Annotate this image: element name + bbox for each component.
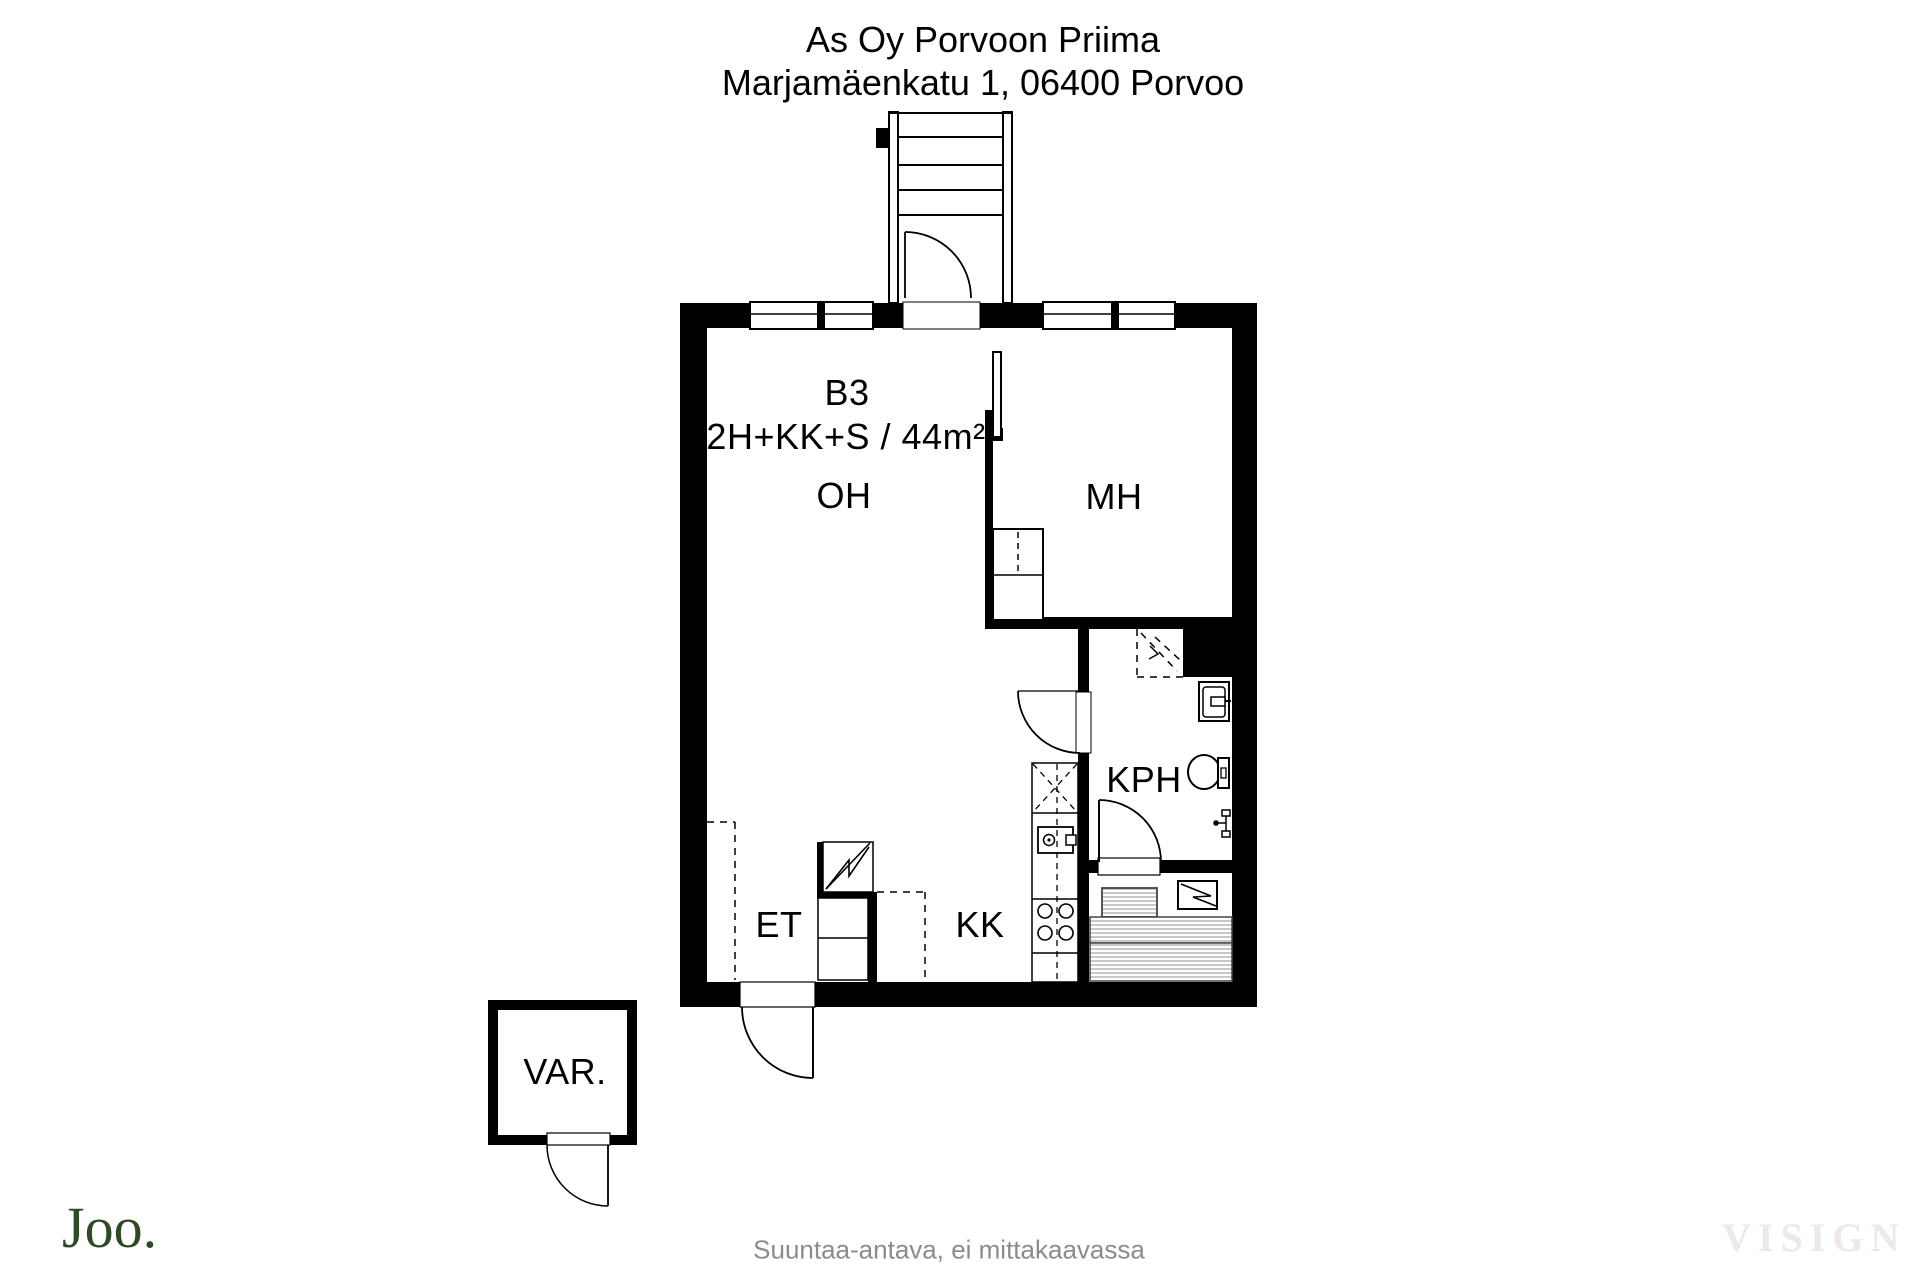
sauna (1090, 881, 1232, 981)
plan-title: As Oy Porvoon Priima Marjamäenkatu 1, 06… (722, 18, 1244, 104)
sauna-bench-lower (1090, 943, 1232, 981)
toilet-icon (1188, 755, 1229, 789)
storage-door-swing-arc (547, 1145, 608, 1206)
room-label-living-room: OH (817, 475, 872, 517)
balcony-door-swing-arc (905, 232, 971, 298)
storage-building (488, 1000, 637, 1206)
kiuas-heater-icon (1178, 881, 1217, 909)
kitchen-counter (1032, 763, 1078, 982)
title-line1: As Oy Porvoon Priima (722, 18, 1244, 61)
entry-area (707, 822, 925, 981)
balcony-door-opening (903, 302, 980, 329)
bedroom-closet (993, 529, 1043, 620)
floor-plan-drawing (0, 0, 1920, 1280)
staircase (876, 112, 1012, 303)
unit-type-label: 2H+KK+S / 44m² (706, 416, 985, 458)
floor-plan-page: As Oy Porvoon Priima Marjamäenkatu 1, 06… (0, 0, 1920, 1280)
interior-walls (817, 410, 1232, 982)
joo-logo: Joo. (62, 1194, 157, 1261)
sauna-door-threshold (1098, 858, 1160, 875)
provision-arrowhead (1149, 646, 1158, 659)
entry-door-threshold (740, 982, 815, 1007)
room-label-storage: VAR. (523, 1051, 606, 1093)
sink-icon (1199, 682, 1231, 721)
shower-mixer-icon (1214, 810, 1230, 837)
stair-rail-left (889, 112, 898, 303)
sauna-door-swing-arc (1099, 800, 1161, 862)
sauna-bench-mid (1090, 917, 1232, 943)
room-label-bedroom: MH (1086, 476, 1143, 518)
bathroom-door-opening (1076, 692, 1091, 753)
wall-kitchen-bathroom (1078, 617, 1089, 982)
stair-post (876, 128, 890, 148)
window-bedroom (1043, 302, 1175, 329)
sauna-bench-upper (1102, 888, 1157, 917)
wall-right (1232, 303, 1257, 1007)
shower-provision-dashed (1137, 629, 1183, 677)
entry-closet (818, 898, 868, 980)
room-label-kitchenette: KK (955, 904, 1004, 946)
title-line2: Marjamäenkatu 1, 06400 Porvoo (722, 61, 1244, 104)
electrical-panel-icon (823, 842, 873, 892)
entry-closet-wall-c (868, 898, 877, 982)
room-label-bathroom: KPH (1106, 759, 1182, 801)
stair-rail-right (1003, 112, 1012, 303)
duct-block (1183, 629, 1232, 677)
wall-living-bedroom (985, 410, 993, 629)
room-label-entry: ET (755, 904, 802, 946)
unit-id-label: B3 (824, 372, 869, 414)
bedroom-sliding-door-leaf (993, 352, 1001, 437)
storage-door-threshold (547, 1133, 610, 1145)
window-living-room (750, 302, 873, 329)
visign-watermark: VISIGN (1722, 1214, 1906, 1261)
wall-left (680, 303, 707, 1007)
entry-closet-wall-a (817, 842, 823, 898)
bathroom-door-swing-arc (1018, 691, 1080, 753)
entry-door-swing-arc (742, 1007, 813, 1078)
exterior-walls (680, 303, 1257, 1007)
entry-closet-wall-b (817, 892, 877, 898)
disclaimer-note: Suuntaa-antava, ei mittakaavassa (753, 1235, 1145, 1266)
